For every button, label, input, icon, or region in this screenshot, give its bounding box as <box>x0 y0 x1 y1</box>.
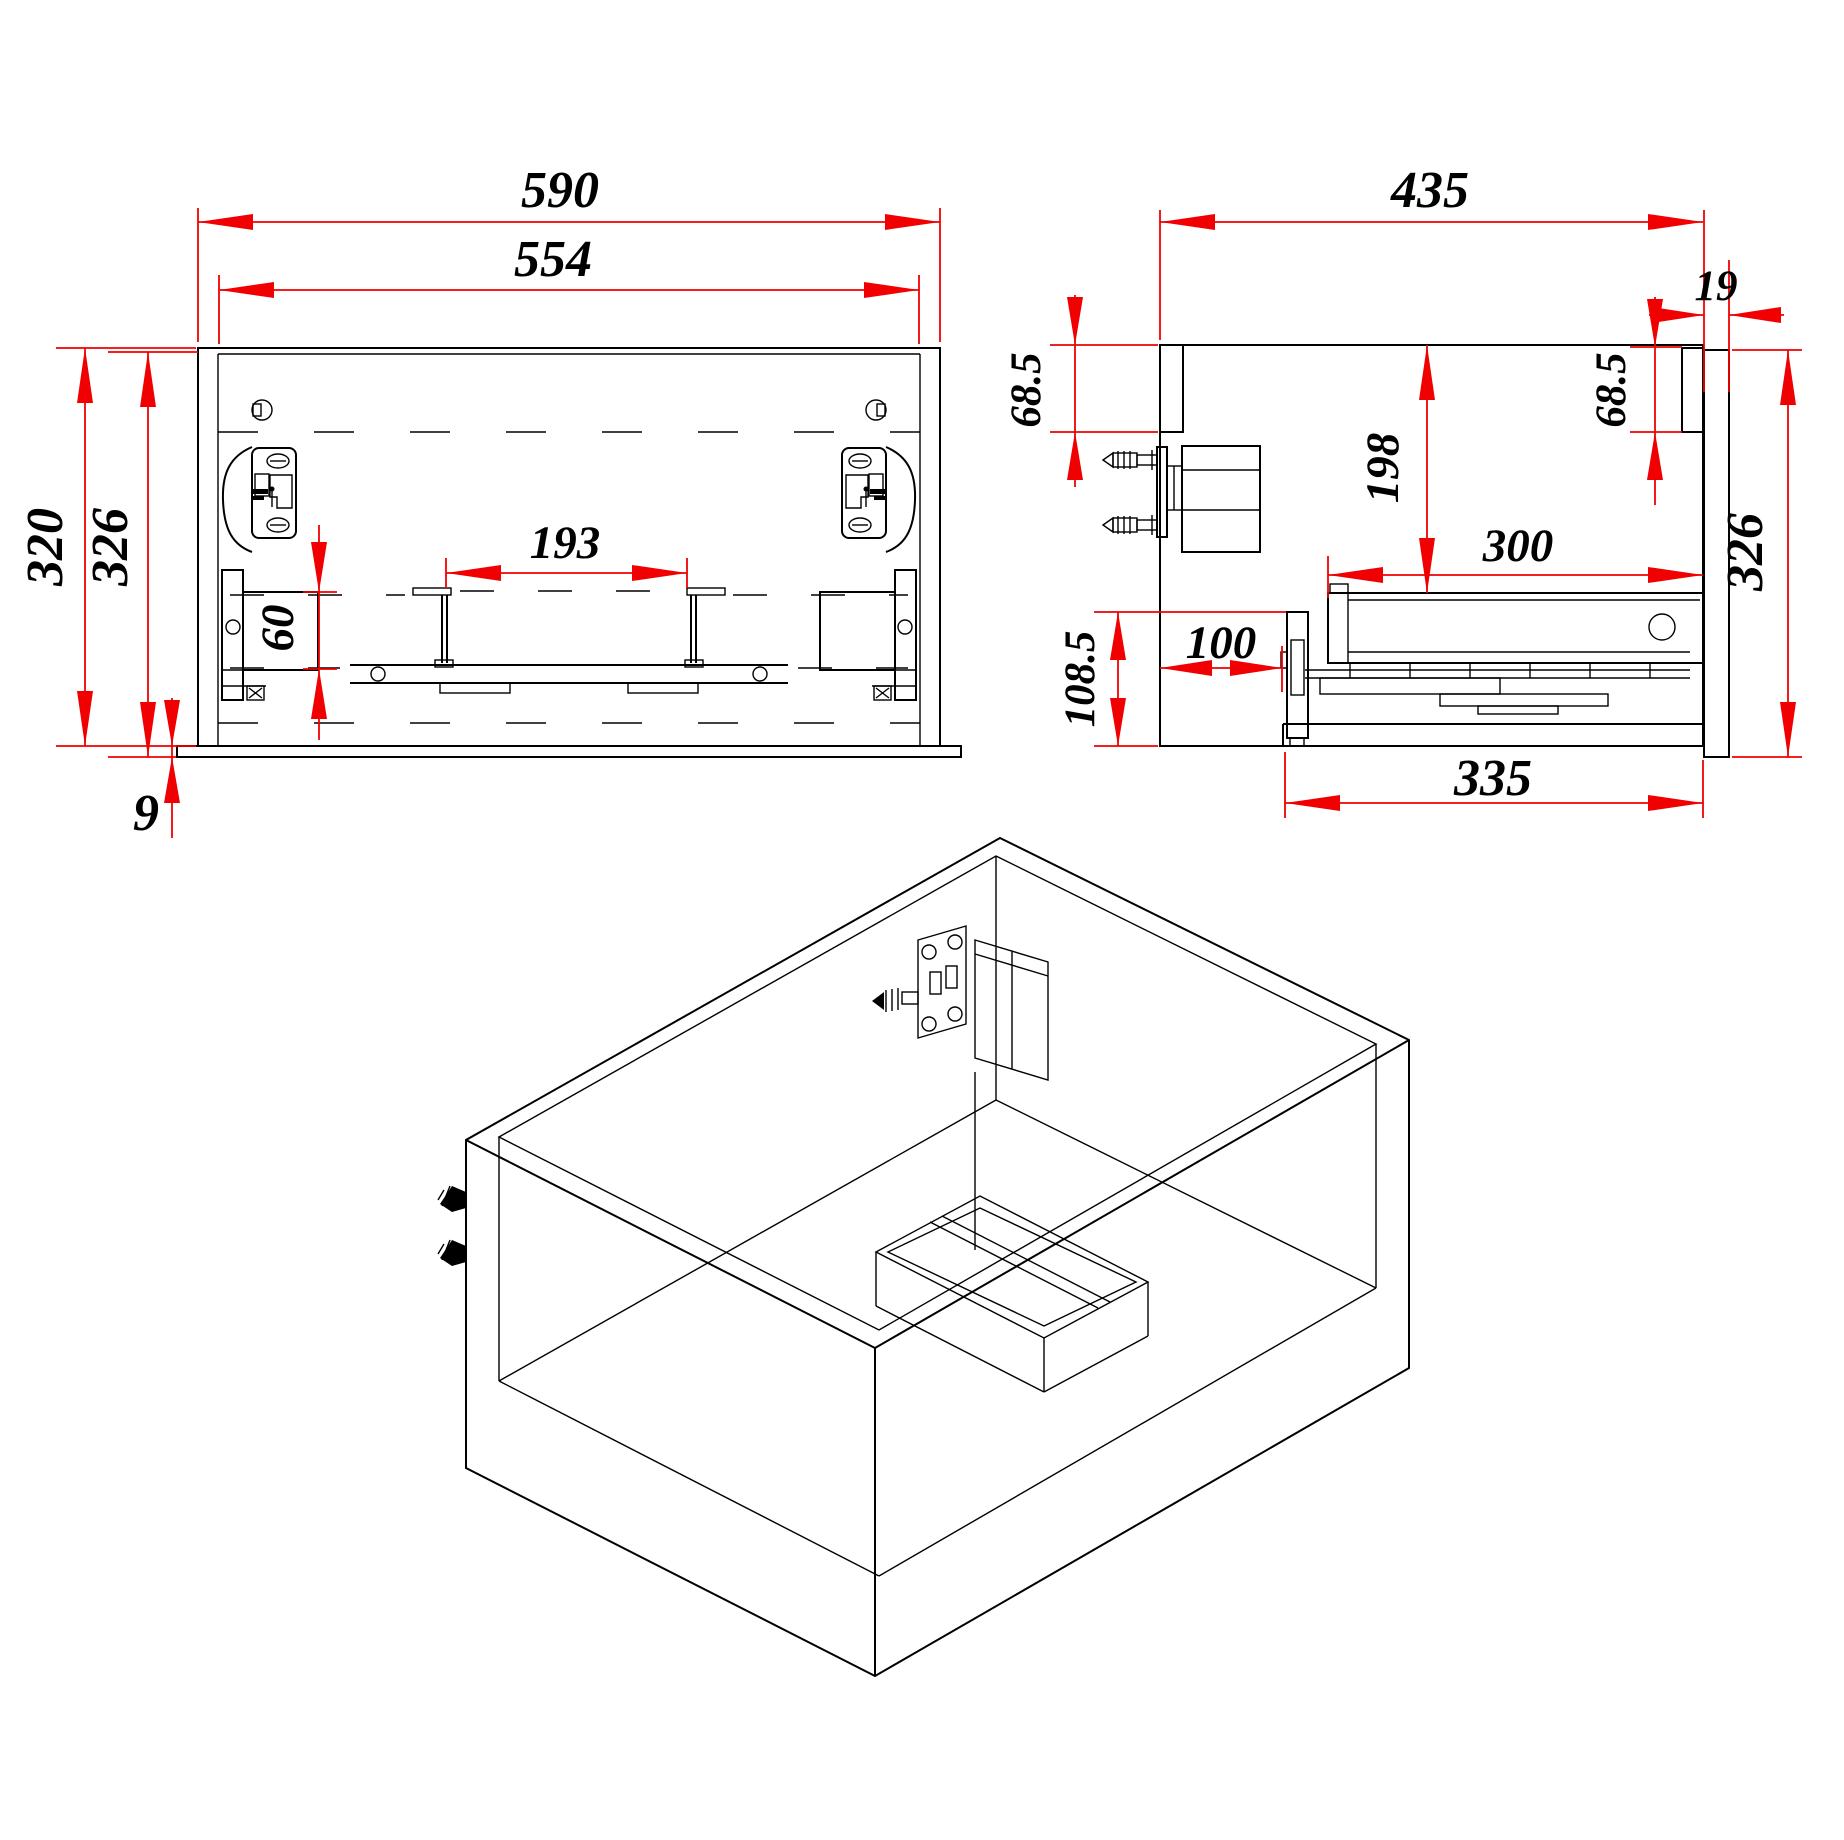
iso-left-screws <box>438 1186 466 1266</box>
iso-hanging-bracket <box>872 926 1048 1250</box>
handle-hole-icon <box>1649 614 1675 640</box>
dim-side-drawer-top-offset: 198 <box>1357 345 1435 593</box>
dim-front-panel-height: 326 <box>82 352 198 757</box>
dim-side-front-panel-thickness: 19 <box>1649 260 1784 392</box>
wall-screw-icon <box>1103 450 1157 470</box>
front-center-rail <box>350 665 788 693</box>
drawing-canvas: 590 554 320 <box>0 0 1844 1840</box>
wall-screw-icon <box>1103 515 1157 535</box>
dim-label-100: 100 <box>1186 617 1257 669</box>
dim-label-108.5: 108.5 <box>1057 631 1104 728</box>
isometric-view <box>438 838 1409 1676</box>
dim-label-435: 435 <box>1390 162 1469 219</box>
dim-front-bracket-spacing: 193 <box>446 517 687 588</box>
dim-side-bottom-depth: 335 <box>1285 750 1703 818</box>
side-screw-icon <box>438 1186 466 1212</box>
side-hanging-bracket <box>1103 446 1260 552</box>
side-drawer-box <box>1281 584 1703 746</box>
dim-label-68.5-back: 68.5 <box>1003 352 1050 427</box>
side-screw-icon <box>438 1240 466 1266</box>
front-right-hardware <box>685 400 916 700</box>
dim-label-320: 320 <box>17 508 74 587</box>
technical-drawing-sheet: 590 554 320 <box>0 0 1844 1840</box>
dim-front-bracket-height: 60 <box>252 525 337 740</box>
dim-label-60: 60 <box>252 605 304 652</box>
drawer-bracket <box>413 588 453 667</box>
front-left-hardware <box>222 400 453 700</box>
iso-interior-divider <box>876 1196 1148 1392</box>
front-hidden-dashed-lines <box>218 432 920 723</box>
dim-label-9: 9 <box>133 785 159 842</box>
front-top-rail <box>1682 348 1703 432</box>
side-view: 435 19 68.5 <box>1003 162 1802 818</box>
dim-label-554: 554 <box>514 231 592 288</box>
wall-mount-rail <box>1160 345 1183 432</box>
dim-label-198: 198 <box>1357 433 1409 504</box>
side-dimensions: 435 19 68.5 <box>1003 162 1802 818</box>
dim-side-back-clearance: 100 <box>1160 617 1282 692</box>
dim-label-326-front: 326 <box>82 508 139 587</box>
dim-front-bottom-overhang: 9 <box>133 698 180 842</box>
dim-side-back-rail-height: 68.5 <box>1003 295 1158 487</box>
dim-label-68.5-front: 68.5 <box>1588 352 1635 427</box>
dim-label-335: 335 <box>1453 750 1532 807</box>
hinge-plate <box>223 447 296 552</box>
dim-side-drawer-depth: 300 <box>1328 520 1703 598</box>
dim-label-300: 300 <box>1482 520 1554 572</box>
dim-label-326-side: 326 <box>1717 513 1774 592</box>
front-view: 590 554 320 <box>17 162 961 842</box>
shelf-pin-hole-icon <box>252 400 272 420</box>
dim-side-front-rail-height: 68.5 <box>1588 297 1682 505</box>
dim-label-590: 590 <box>521 162 599 219</box>
front-dimensions: 590 554 320 <box>17 162 940 842</box>
front-panel-bottom-band <box>177 746 961 757</box>
dim-label-193: 193 <box>530 517 601 569</box>
dim-label-19: 19 <box>1695 263 1738 310</box>
iso-cabinet-body <box>466 838 1409 1676</box>
dim-front-inner-width: 554 <box>219 231 919 344</box>
